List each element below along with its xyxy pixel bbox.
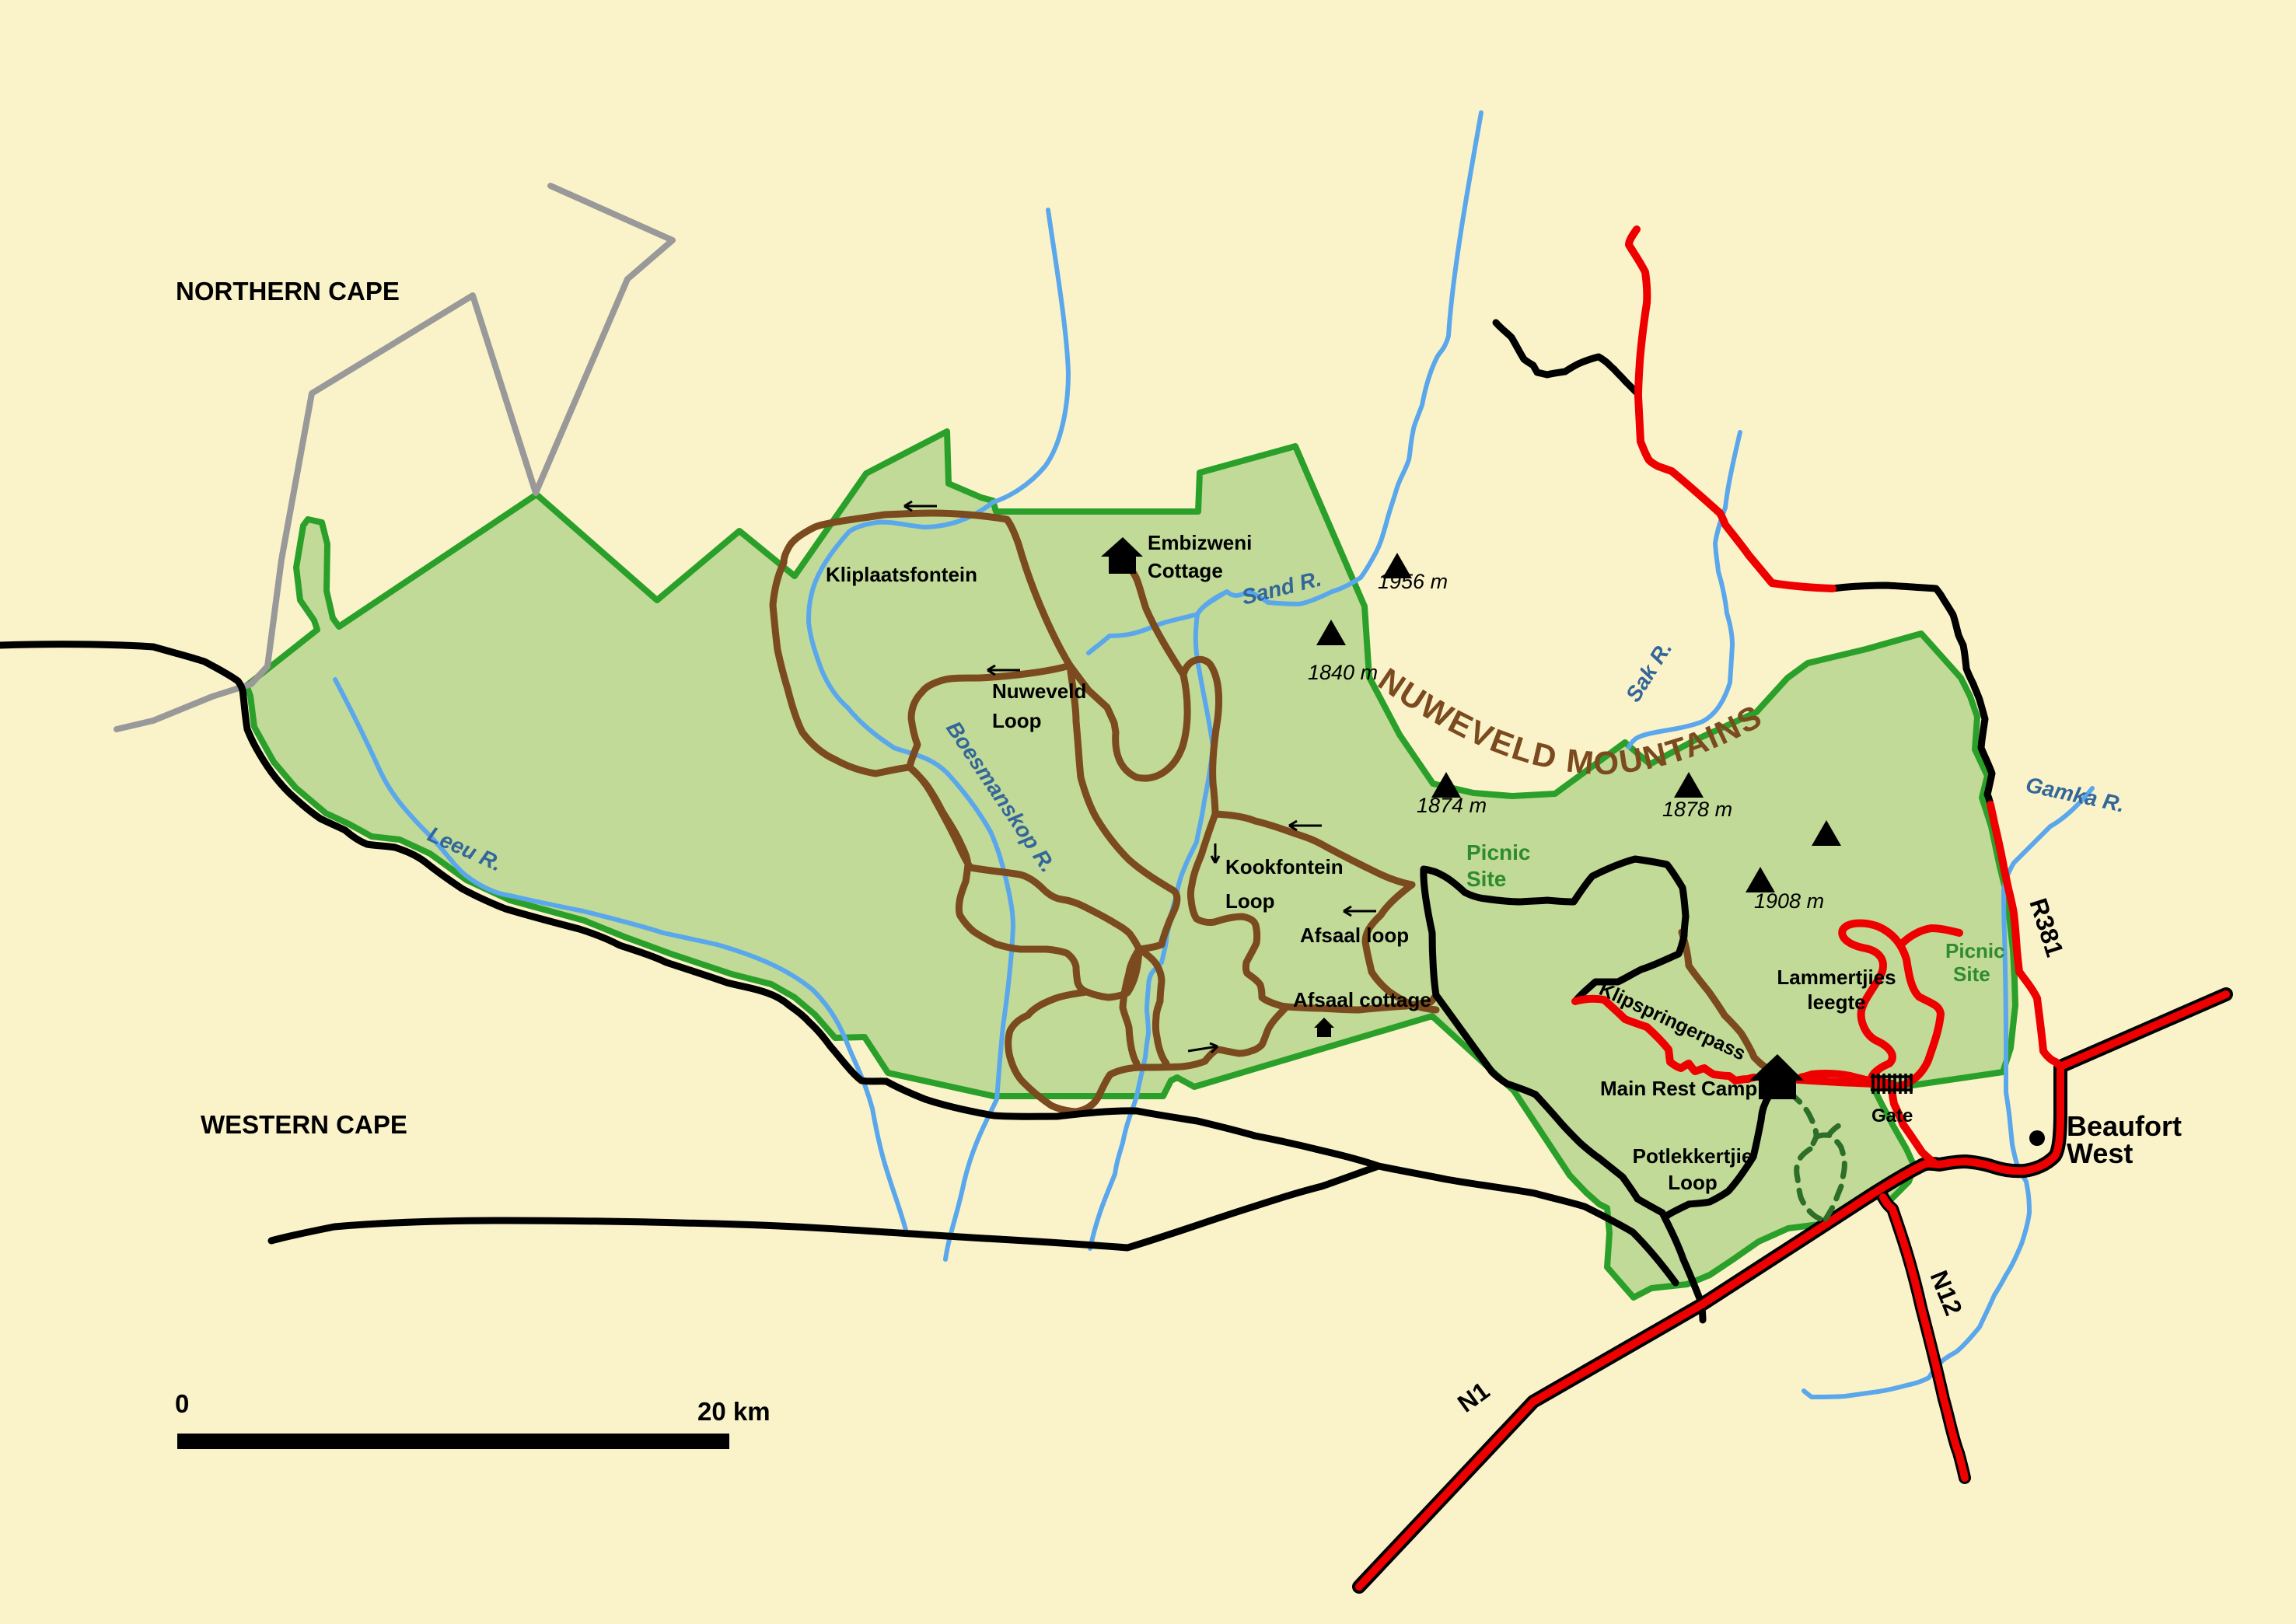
svg-text:Loop: Loop bbox=[992, 709, 1042, 732]
svg-text:Picnic: Picnic bbox=[1466, 840, 1530, 864]
svg-text:Nuweveld: Nuweveld bbox=[992, 679, 1086, 703]
svg-text:1874 m: 1874 m bbox=[1417, 794, 1487, 817]
svg-text:Kliplaatsfontein: Kliplaatsfontein bbox=[826, 563, 977, 586]
svg-text:Lammertjies: Lammertjies bbox=[1777, 966, 1896, 989]
svg-text:Loop: Loop bbox=[1225, 889, 1275, 913]
svg-text:20 km: 20 km bbox=[697, 1397, 771, 1426]
svg-text:Main Rest Camp: Main Rest Camp bbox=[1600, 1077, 1757, 1100]
svg-text:Embizweni: Embizweni bbox=[1148, 531, 1252, 554]
svg-text:NORTHERN CAPE: NORTHERN CAPE bbox=[176, 277, 400, 306]
svg-text:Loop: Loop bbox=[1668, 1171, 1718, 1194]
svg-text:1878 m: 1878 m bbox=[1662, 798, 1732, 821]
svg-text:Afsaal loop: Afsaal loop bbox=[1300, 924, 1409, 947]
svg-text:Cottage: Cottage bbox=[1148, 559, 1223, 582]
svg-text:WESTERN CAPE: WESTERN CAPE bbox=[201, 1110, 407, 1139]
svg-text:Kookfontein: Kookfontein bbox=[1225, 855, 1344, 878]
svg-text:leegte: leegte bbox=[1807, 990, 1865, 1014]
svg-text:Site: Site bbox=[1466, 867, 1506, 891]
svg-text:Gate: Gate bbox=[1871, 1105, 1913, 1126]
svg-text:Potlekkertjie: Potlekkertjie bbox=[1633, 1144, 1753, 1168]
svg-text:1956 m: 1956 m bbox=[1378, 570, 1448, 593]
svg-text:1840 m: 1840 m bbox=[1308, 661, 1378, 684]
svg-text:West: West bbox=[2067, 1137, 2133, 1169]
svg-text:1908 m: 1908 m bbox=[1754, 889, 1824, 913]
svg-text:Afsaal cottage: Afsaal cottage bbox=[1293, 988, 1431, 1011]
svg-text:0: 0 bbox=[175, 1389, 189, 1418]
svg-text:Site: Site bbox=[1953, 962, 1990, 986]
svg-text:Picnic: Picnic bbox=[1945, 939, 2005, 962]
